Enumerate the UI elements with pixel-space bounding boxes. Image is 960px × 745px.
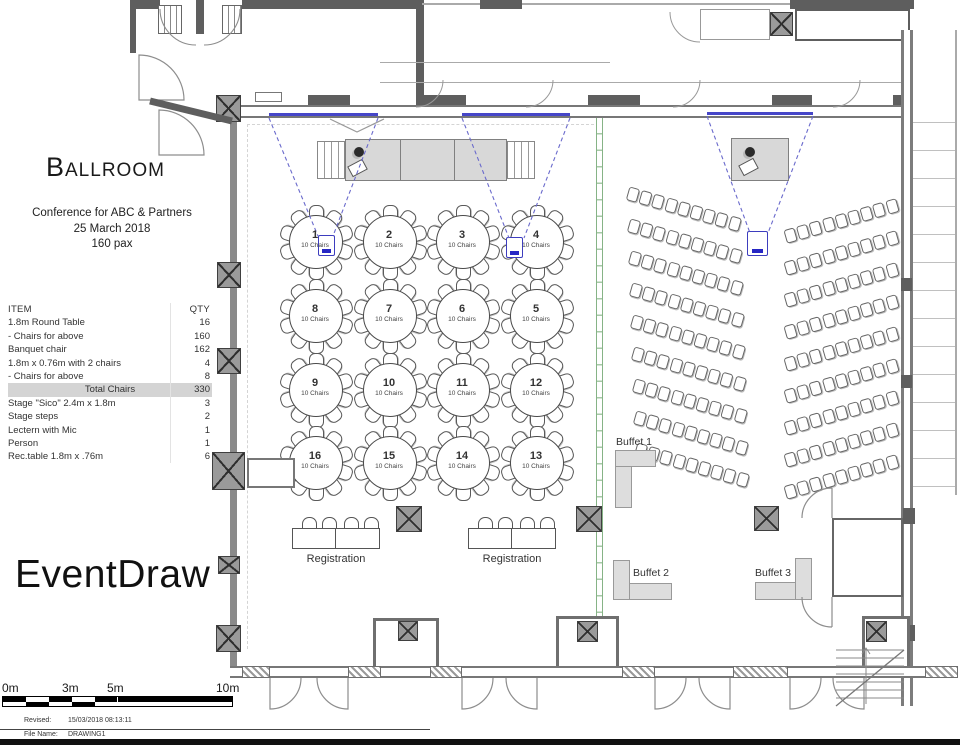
item-name: - Chairs for above bbox=[8, 331, 84, 342]
column-icon bbox=[216, 625, 241, 652]
chair-icon bbox=[783, 291, 797, 307]
items-table-header: ITEMQTY bbox=[8, 303, 212, 316]
column-icon bbox=[217, 262, 241, 288]
buffet-table[interactable] bbox=[615, 466, 632, 508]
chair-icon bbox=[631, 346, 645, 362]
chair-icon bbox=[834, 469, 848, 485]
chair-icon bbox=[783, 355, 797, 371]
col-item: ITEM bbox=[8, 304, 32, 315]
chair-icon bbox=[734, 439, 748, 455]
screen-icon[interactable] bbox=[462, 113, 570, 116]
chair-icon bbox=[847, 465, 861, 481]
chair-icon bbox=[657, 386, 671, 402]
chair-icon bbox=[885, 294, 899, 310]
item-qty: 2 bbox=[205, 410, 210, 423]
subtitle-line-1: Conference for ABC & Partners bbox=[8, 206, 216, 222]
wall-segment bbox=[130, 0, 160, 9]
scale-segment bbox=[49, 702, 72, 707]
items-table-row: 1.8m x 0.76m with 2 chairs4 bbox=[8, 357, 212, 370]
chair-icon bbox=[721, 436, 735, 452]
chair-icon bbox=[681, 361, 695, 377]
chair-icon bbox=[834, 437, 848, 453]
item-qty: 6 bbox=[205, 450, 210, 463]
chair-icon bbox=[796, 448, 810, 464]
table-number: 4 bbox=[498, 229, 574, 241]
corridor-table bbox=[255, 92, 282, 102]
chair-icon bbox=[717, 308, 731, 324]
chair-icon bbox=[641, 286, 655, 302]
chair-icon bbox=[872, 234, 886, 250]
stage-section-divider bbox=[454, 140, 455, 180]
chair-icon bbox=[692, 301, 706, 317]
ballroom-right-wall bbox=[901, 30, 913, 706]
chair-icon bbox=[670, 389, 684, 405]
item-name: Total Chairs bbox=[85, 384, 135, 395]
chair-icon bbox=[834, 277, 848, 293]
chair-icon bbox=[859, 430, 873, 446]
chair-icon bbox=[783, 259, 797, 275]
chair-icon bbox=[847, 273, 861, 289]
chair-icon bbox=[809, 380, 823, 396]
col-qty: QTY bbox=[190, 303, 210, 316]
chair-icon bbox=[703, 240, 717, 256]
table-seat-count: 10 Chairs bbox=[277, 390, 353, 397]
table-number: 12 bbox=[498, 377, 574, 389]
window-mullions bbox=[222, 5, 242, 34]
chair-icon bbox=[633, 410, 647, 426]
items-table-row: Lectern with Mic1 bbox=[8, 424, 212, 437]
column-icon bbox=[396, 506, 422, 532]
chair-icon bbox=[722, 468, 736, 484]
scale-bar-graphic bbox=[2, 696, 233, 707]
table-seat-count: 10 Chairs bbox=[351, 316, 427, 323]
chair-icon bbox=[885, 422, 899, 438]
item-qty: 4 bbox=[205, 357, 210, 370]
ballroom-bottom-wall bbox=[230, 666, 958, 678]
chair-icon bbox=[710, 464, 724, 480]
chair-icon bbox=[654, 290, 668, 306]
round-table-9[interactable]: 910 Chairs bbox=[277, 351, 353, 427]
item-qty: 162 bbox=[194, 343, 210, 356]
column-icon bbox=[218, 556, 240, 574]
chair-icon bbox=[683, 425, 697, 441]
chair-icon bbox=[693, 333, 707, 349]
page-title: Ballroom bbox=[46, 152, 165, 183]
chair-icon bbox=[885, 358, 899, 374]
item-qty: 160 bbox=[194, 330, 210, 343]
door-swing-icon bbox=[139, 55, 204, 155]
chair-icon bbox=[632, 378, 646, 394]
items-table-row: Total Chairs330 bbox=[8, 383, 212, 396]
chair-icon bbox=[697, 461, 711, 477]
chair-icon bbox=[859, 238, 873, 254]
chair-icon bbox=[643, 350, 657, 366]
column-icon bbox=[216, 95, 241, 122]
chair-icon bbox=[679, 297, 693, 313]
chair-icon bbox=[629, 282, 643, 298]
items-table-row: Stage "Sico" 2.4m x 1.8m3 bbox=[8, 397, 212, 410]
chair-icon bbox=[715, 244, 729, 260]
chair-icon bbox=[796, 288, 810, 304]
item-name: 1.8m Round Table bbox=[8, 317, 85, 328]
scale-segment bbox=[118, 702, 233, 707]
items-table-divider bbox=[170, 303, 171, 463]
chair-icon bbox=[731, 343, 745, 359]
wall-segment bbox=[130, 9, 136, 53]
buffet-table[interactable] bbox=[795, 558, 812, 600]
chair-icon bbox=[821, 344, 835, 360]
chair-icon bbox=[859, 206, 873, 222]
chair-icon bbox=[651, 194, 665, 210]
chair-icon bbox=[665, 229, 679, 245]
items-table-row: Stage steps2 bbox=[8, 410, 212, 423]
round-table-2[interactable]: 210 Chairs bbox=[351, 203, 427, 279]
chair-icon bbox=[859, 334, 873, 350]
stage-steps-left[interactable] bbox=[317, 141, 345, 179]
buffet-label: Buffet 1 bbox=[616, 436, 652, 448]
chair-icon bbox=[664, 197, 678, 213]
chair-icon bbox=[872, 330, 886, 346]
chair-icon bbox=[834, 405, 848, 421]
chair-icon bbox=[732, 375, 746, 391]
table-seat-count: 10 Chairs bbox=[277, 463, 353, 470]
table-number: 14 bbox=[424, 450, 500, 462]
registration-table[interactable] bbox=[468, 528, 556, 549]
person-icon[interactable] bbox=[745, 147, 755, 157]
scale-segment bbox=[3, 702, 26, 707]
column-icon bbox=[577, 621, 598, 642]
scale-segment bbox=[72, 702, 95, 707]
chair-icon bbox=[872, 458, 886, 474]
projector-lens bbox=[510, 251, 519, 255]
chair-icon bbox=[783, 483, 797, 499]
chair-icon bbox=[821, 248, 835, 264]
chair-icon bbox=[821, 472, 835, 488]
chair-icon bbox=[821, 280, 835, 296]
buffet-label: Buffet 3 bbox=[755, 567, 791, 579]
chair-icon bbox=[672, 453, 686, 469]
round-table-14[interactable]: 1410 Chairs bbox=[424, 424, 500, 500]
person-icon[interactable] bbox=[354, 147, 364, 157]
chair-icon bbox=[847, 401, 861, 417]
table-seat-count: 10 Chairs bbox=[351, 242, 427, 249]
chair-icon bbox=[796, 416, 810, 432]
chair-icon bbox=[809, 412, 823, 428]
round-table-6[interactable]: 610 Chairs bbox=[424, 277, 500, 353]
chair-icon bbox=[872, 426, 886, 442]
scale-segment bbox=[95, 702, 118, 707]
stage-steps-right[interactable] bbox=[507, 141, 535, 179]
chair-icon bbox=[821, 312, 835, 328]
column-block bbox=[901, 375, 912, 388]
stage-theater[interactable] bbox=[731, 138, 789, 181]
registration-label: Registration bbox=[292, 553, 380, 565]
table-number: 1 bbox=[277, 229, 353, 241]
items-table-row: - Chairs for above160 bbox=[8, 330, 212, 343]
chair-icon bbox=[859, 302, 873, 318]
chair-icon bbox=[729, 279, 743, 295]
chair-icon bbox=[847, 433, 861, 449]
stage-section-divider bbox=[400, 140, 401, 180]
round-table-5[interactable]: 510 Chairs bbox=[498, 277, 574, 353]
table-number: 6 bbox=[424, 303, 500, 315]
chair-icon bbox=[809, 476, 823, 492]
table-number: 10 bbox=[351, 377, 427, 389]
chair-icon bbox=[696, 429, 710, 445]
table-seat-count: 10 Chairs bbox=[351, 463, 427, 470]
scale-label: 10m bbox=[216, 681, 239, 695]
chair-icon bbox=[783, 323, 797, 339]
item-name: Stage steps bbox=[8, 411, 58, 422]
chair-icon bbox=[821, 408, 835, 424]
projector-icon[interactable] bbox=[747, 231, 768, 256]
chair-icon bbox=[707, 368, 721, 384]
lectern-icon[interactable] bbox=[738, 158, 759, 177]
chair-icon bbox=[644, 382, 658, 398]
projector-lens bbox=[322, 249, 331, 253]
round-table-3[interactable]: 310 Chairs bbox=[424, 203, 500, 279]
table-seat-count: 10 Chairs bbox=[498, 390, 574, 397]
chair-icon bbox=[809, 316, 823, 332]
chair-icon bbox=[733, 407, 747, 423]
footer-divider bbox=[0, 729, 430, 730]
window-mullions bbox=[158, 5, 182, 34]
chair-icon bbox=[656, 354, 670, 370]
chair-icon bbox=[680, 329, 694, 345]
chair-icon bbox=[885, 262, 899, 278]
table-number: 9 bbox=[277, 377, 353, 389]
column-icon bbox=[212, 452, 245, 490]
chair-icon bbox=[885, 390, 899, 406]
chair-icon bbox=[716, 276, 730, 292]
chair-icon bbox=[667, 293, 681, 309]
filename-value: DRAWING1 bbox=[68, 731, 105, 738]
chair-icon bbox=[809, 220, 823, 236]
table-seat-count: 10 Chairs bbox=[498, 242, 574, 249]
screen-bracket bbox=[330, 119, 384, 132]
chair-icon bbox=[847, 369, 861, 385]
lectern-icon[interactable] bbox=[347, 159, 368, 178]
item-qty: 1 bbox=[205, 424, 210, 437]
column-icon bbox=[217, 348, 241, 374]
projector-lens bbox=[752, 249, 763, 253]
chair-icon bbox=[735, 471, 749, 487]
chair-icon bbox=[834, 213, 848, 229]
chair-icon bbox=[872, 298, 886, 314]
chair-icon bbox=[872, 394, 886, 410]
item-name: Person bbox=[8, 438, 38, 449]
table-seat-count: 10 Chairs bbox=[424, 463, 500, 470]
chair-icon bbox=[695, 397, 709, 413]
column-block bbox=[901, 278, 912, 291]
chair-icon bbox=[676, 201, 690, 217]
wall-line bbox=[422, 3, 792, 5]
chair-icon bbox=[847, 241, 861, 257]
column-icon bbox=[770, 12, 793, 36]
table-number: 3 bbox=[424, 229, 500, 241]
chair-icon bbox=[859, 398, 873, 414]
chair-icon bbox=[690, 237, 704, 253]
chair-icon bbox=[718, 340, 732, 356]
item-name: Rec.table 1.8m x .76m bbox=[8, 451, 103, 462]
item-name: 1.8m x 0.76m with 2 chairs bbox=[8, 358, 121, 369]
round-table-12[interactable]: 1210 Chairs bbox=[498, 351, 574, 427]
wall-segment bbox=[242, 0, 420, 9]
chair-icon bbox=[872, 266, 886, 282]
chair-icon bbox=[678, 265, 692, 281]
door-threshold bbox=[430, 666, 462, 678]
chair-icon bbox=[796, 256, 810, 272]
table-number: 2 bbox=[351, 229, 427, 241]
chair-icon bbox=[627, 218, 641, 234]
revised-label: Revised: bbox=[24, 717, 51, 724]
chair-icon bbox=[885, 198, 899, 214]
table-seat-count: 10 Chairs bbox=[277, 242, 353, 249]
door-threshold bbox=[733, 666, 788, 678]
column-icon bbox=[576, 506, 602, 532]
chair-icon bbox=[809, 284, 823, 300]
door-swing-icon bbox=[270, 678, 864, 709]
door-threshold bbox=[925, 666, 958, 678]
chair-icon bbox=[796, 224, 810, 240]
floorplan-canvas: Ballroom Conference for ABC & Partners 2… bbox=[0, 0, 960, 745]
chair-icon bbox=[694, 365, 708, 381]
chair-icon bbox=[796, 384, 810, 400]
table-seat-count: 10 Chairs bbox=[351, 390, 427, 397]
table-seat-count: 10 Chairs bbox=[424, 390, 500, 397]
item-name: - Chairs for above bbox=[8, 371, 84, 382]
chair-icon bbox=[677, 233, 691, 249]
subtitle-line-3: 160 pax bbox=[8, 237, 216, 253]
chair-icon bbox=[859, 270, 873, 286]
chair-icon bbox=[669, 357, 683, 373]
door-threshold bbox=[622, 666, 655, 678]
buffet-table[interactable] bbox=[755, 582, 796, 600]
buffet-table[interactable] bbox=[613, 560, 630, 600]
chair-icon bbox=[796, 352, 810, 368]
table-number: 5 bbox=[498, 303, 574, 315]
chair-icon bbox=[796, 320, 810, 336]
chair-icon bbox=[728, 247, 742, 263]
registration-table[interactable] bbox=[292, 528, 380, 549]
round-table-15[interactable]: 1510 Chairs bbox=[351, 424, 427, 500]
screen-icon[interactable] bbox=[707, 112, 813, 115]
items-table-row: Person1 bbox=[8, 437, 212, 450]
round-table-10[interactable]: 1010 Chairs bbox=[351, 351, 427, 427]
chair-icon bbox=[847, 337, 861, 353]
chair-icon bbox=[666, 261, 680, 277]
item-qty: 1 bbox=[205, 437, 210, 450]
chair-icon bbox=[783, 387, 797, 403]
chair-icon bbox=[639, 222, 653, 238]
chair-icon bbox=[706, 336, 720, 352]
round-table-11[interactable]: 1110 Chairs bbox=[424, 351, 500, 427]
round-table-1[interactable]: 110 Chairs bbox=[277, 203, 353, 279]
chair-icon bbox=[682, 393, 696, 409]
stage-banquet[interactable] bbox=[345, 139, 507, 181]
round-table-7[interactable]: 710 Chairs bbox=[351, 277, 427, 353]
room-outline bbox=[795, 9, 910, 41]
chair-icon bbox=[652, 226, 666, 242]
registration-label: Registration bbox=[468, 553, 556, 565]
chair-icon bbox=[702, 208, 716, 224]
item-qty: 16 bbox=[199, 316, 210, 329]
chair-icon bbox=[628, 250, 642, 266]
item-name: Stage "Sico" 2.4m x 1.8m bbox=[8, 398, 116, 409]
chair-icon bbox=[834, 341, 848, 357]
chair-icon bbox=[821, 216, 835, 232]
chair-icon bbox=[872, 362, 886, 378]
column-icon bbox=[754, 506, 779, 531]
window-wall-ticks bbox=[913, 95, 955, 505]
chair-icon bbox=[847, 305, 861, 321]
table-number: 8 bbox=[277, 303, 353, 315]
screen-icon[interactable] bbox=[269, 113, 378, 116]
table-number: 11 bbox=[424, 377, 500, 389]
scale-label: 0m bbox=[2, 681, 19, 695]
scale-segment bbox=[26, 702, 49, 707]
chair-icon bbox=[872, 202, 886, 218]
buffet-label: Buffet 2 bbox=[633, 567, 669, 579]
items-table-row: - Chairs for above8 bbox=[8, 370, 212, 383]
event-subtitle: Conference for ABC & Partners 25 March 2… bbox=[8, 206, 216, 253]
chair-icon bbox=[638, 190, 652, 206]
revised-value: 15/03/2018 08:13:11 bbox=[68, 717, 132, 724]
round-table-8[interactable]: 810 Chairs bbox=[277, 277, 353, 353]
chair-icon bbox=[658, 418, 672, 434]
wall-line bbox=[380, 82, 903, 83]
chair-icon bbox=[885, 326, 899, 342]
chair-icon bbox=[668, 325, 682, 341]
chair-icon bbox=[719, 372, 733, 388]
table-number: 13 bbox=[498, 450, 574, 462]
chair-icon bbox=[671, 421, 685, 437]
wall-line bbox=[380, 62, 610, 63]
chair-icon bbox=[645, 414, 659, 430]
column-block bbox=[903, 508, 915, 524]
items-table-row: Banquet chair162 bbox=[8, 343, 212, 356]
column-icon bbox=[866, 621, 887, 642]
chair-icon bbox=[727, 215, 741, 231]
room-outline bbox=[700, 9, 770, 40]
chair-icon bbox=[708, 400, 722, 416]
outer-wall-line bbox=[955, 30, 957, 495]
table-seat-count: 10 Chairs bbox=[498, 463, 574, 470]
round-table-13[interactable]: 1310 Chairs bbox=[498, 424, 574, 500]
scale-label: 5m bbox=[107, 681, 124, 695]
subtitle-line-2: 25 March 2018 bbox=[8, 222, 216, 238]
table-number: 16 bbox=[277, 450, 353, 462]
chair-icon bbox=[809, 348, 823, 364]
items-table-row: Rec.table 1.8m x .76m6 bbox=[8, 450, 212, 463]
wall-segment bbox=[416, 0, 424, 106]
chair-icon bbox=[809, 444, 823, 460]
ballroom-left-wall bbox=[230, 118, 237, 678]
title-block-bar bbox=[0, 739, 960, 745]
chair-icon bbox=[809, 252, 823, 268]
buffet-table[interactable] bbox=[629, 583, 672, 600]
chair-icon bbox=[714, 212, 728, 228]
chair-icon bbox=[821, 440, 835, 456]
buffet-table[interactable] bbox=[615, 450, 656, 467]
chair-icon bbox=[859, 462, 873, 478]
table-seat-count: 10 Chairs bbox=[424, 242, 500, 249]
chair-icon bbox=[720, 404, 734, 420]
items-table-row: 1.8m Round Table16 bbox=[8, 316, 212, 329]
chair-icon bbox=[691, 269, 705, 285]
airwall-partition[interactable] bbox=[596, 118, 603, 658]
eventdraw-watermark: EventDraw bbox=[15, 553, 210, 597]
